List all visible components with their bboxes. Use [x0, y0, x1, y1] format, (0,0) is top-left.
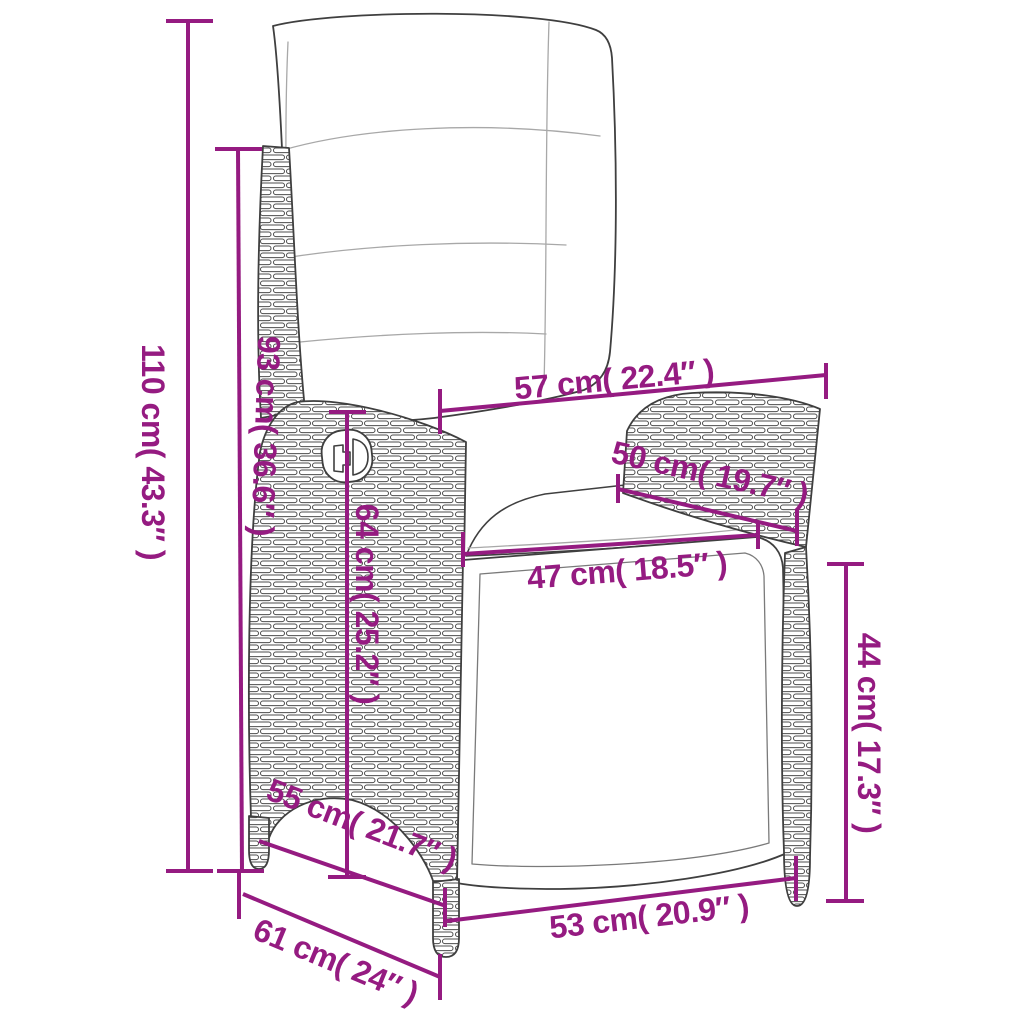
dim-label-total-height: 110 cm( 43.3″ ): [135, 344, 171, 560]
dimension-total-height: [166, 21, 213, 871]
dim-label-backrest-height: 93 cm( 36.6″ ): [244, 335, 287, 537]
dim-label-armrest-height: 64 cm( 25.2″ ): [349, 504, 385, 704]
dimension-line: [238, 149, 242, 871]
back-cushion: [273, 14, 616, 422]
dim-label-seat-height: 44 cm( 17.3″ ): [851, 633, 887, 833]
chair-diagram-svg: 110 cm( 43.3″ ) 93 cm( 36.6″ ) 57 cm( 22…: [0, 0, 1024, 1024]
seat-base: [457, 537, 789, 889]
dim-label-base-side-depth: 61 cm( 24″ ): [248, 911, 423, 1011]
right-side-post: [782, 547, 812, 906]
product-dimension-diagram: 110 cm( 43.3″ ) 93 cm( 36.6″ ) 57 cm( 22…: [0, 0, 1024, 1024]
